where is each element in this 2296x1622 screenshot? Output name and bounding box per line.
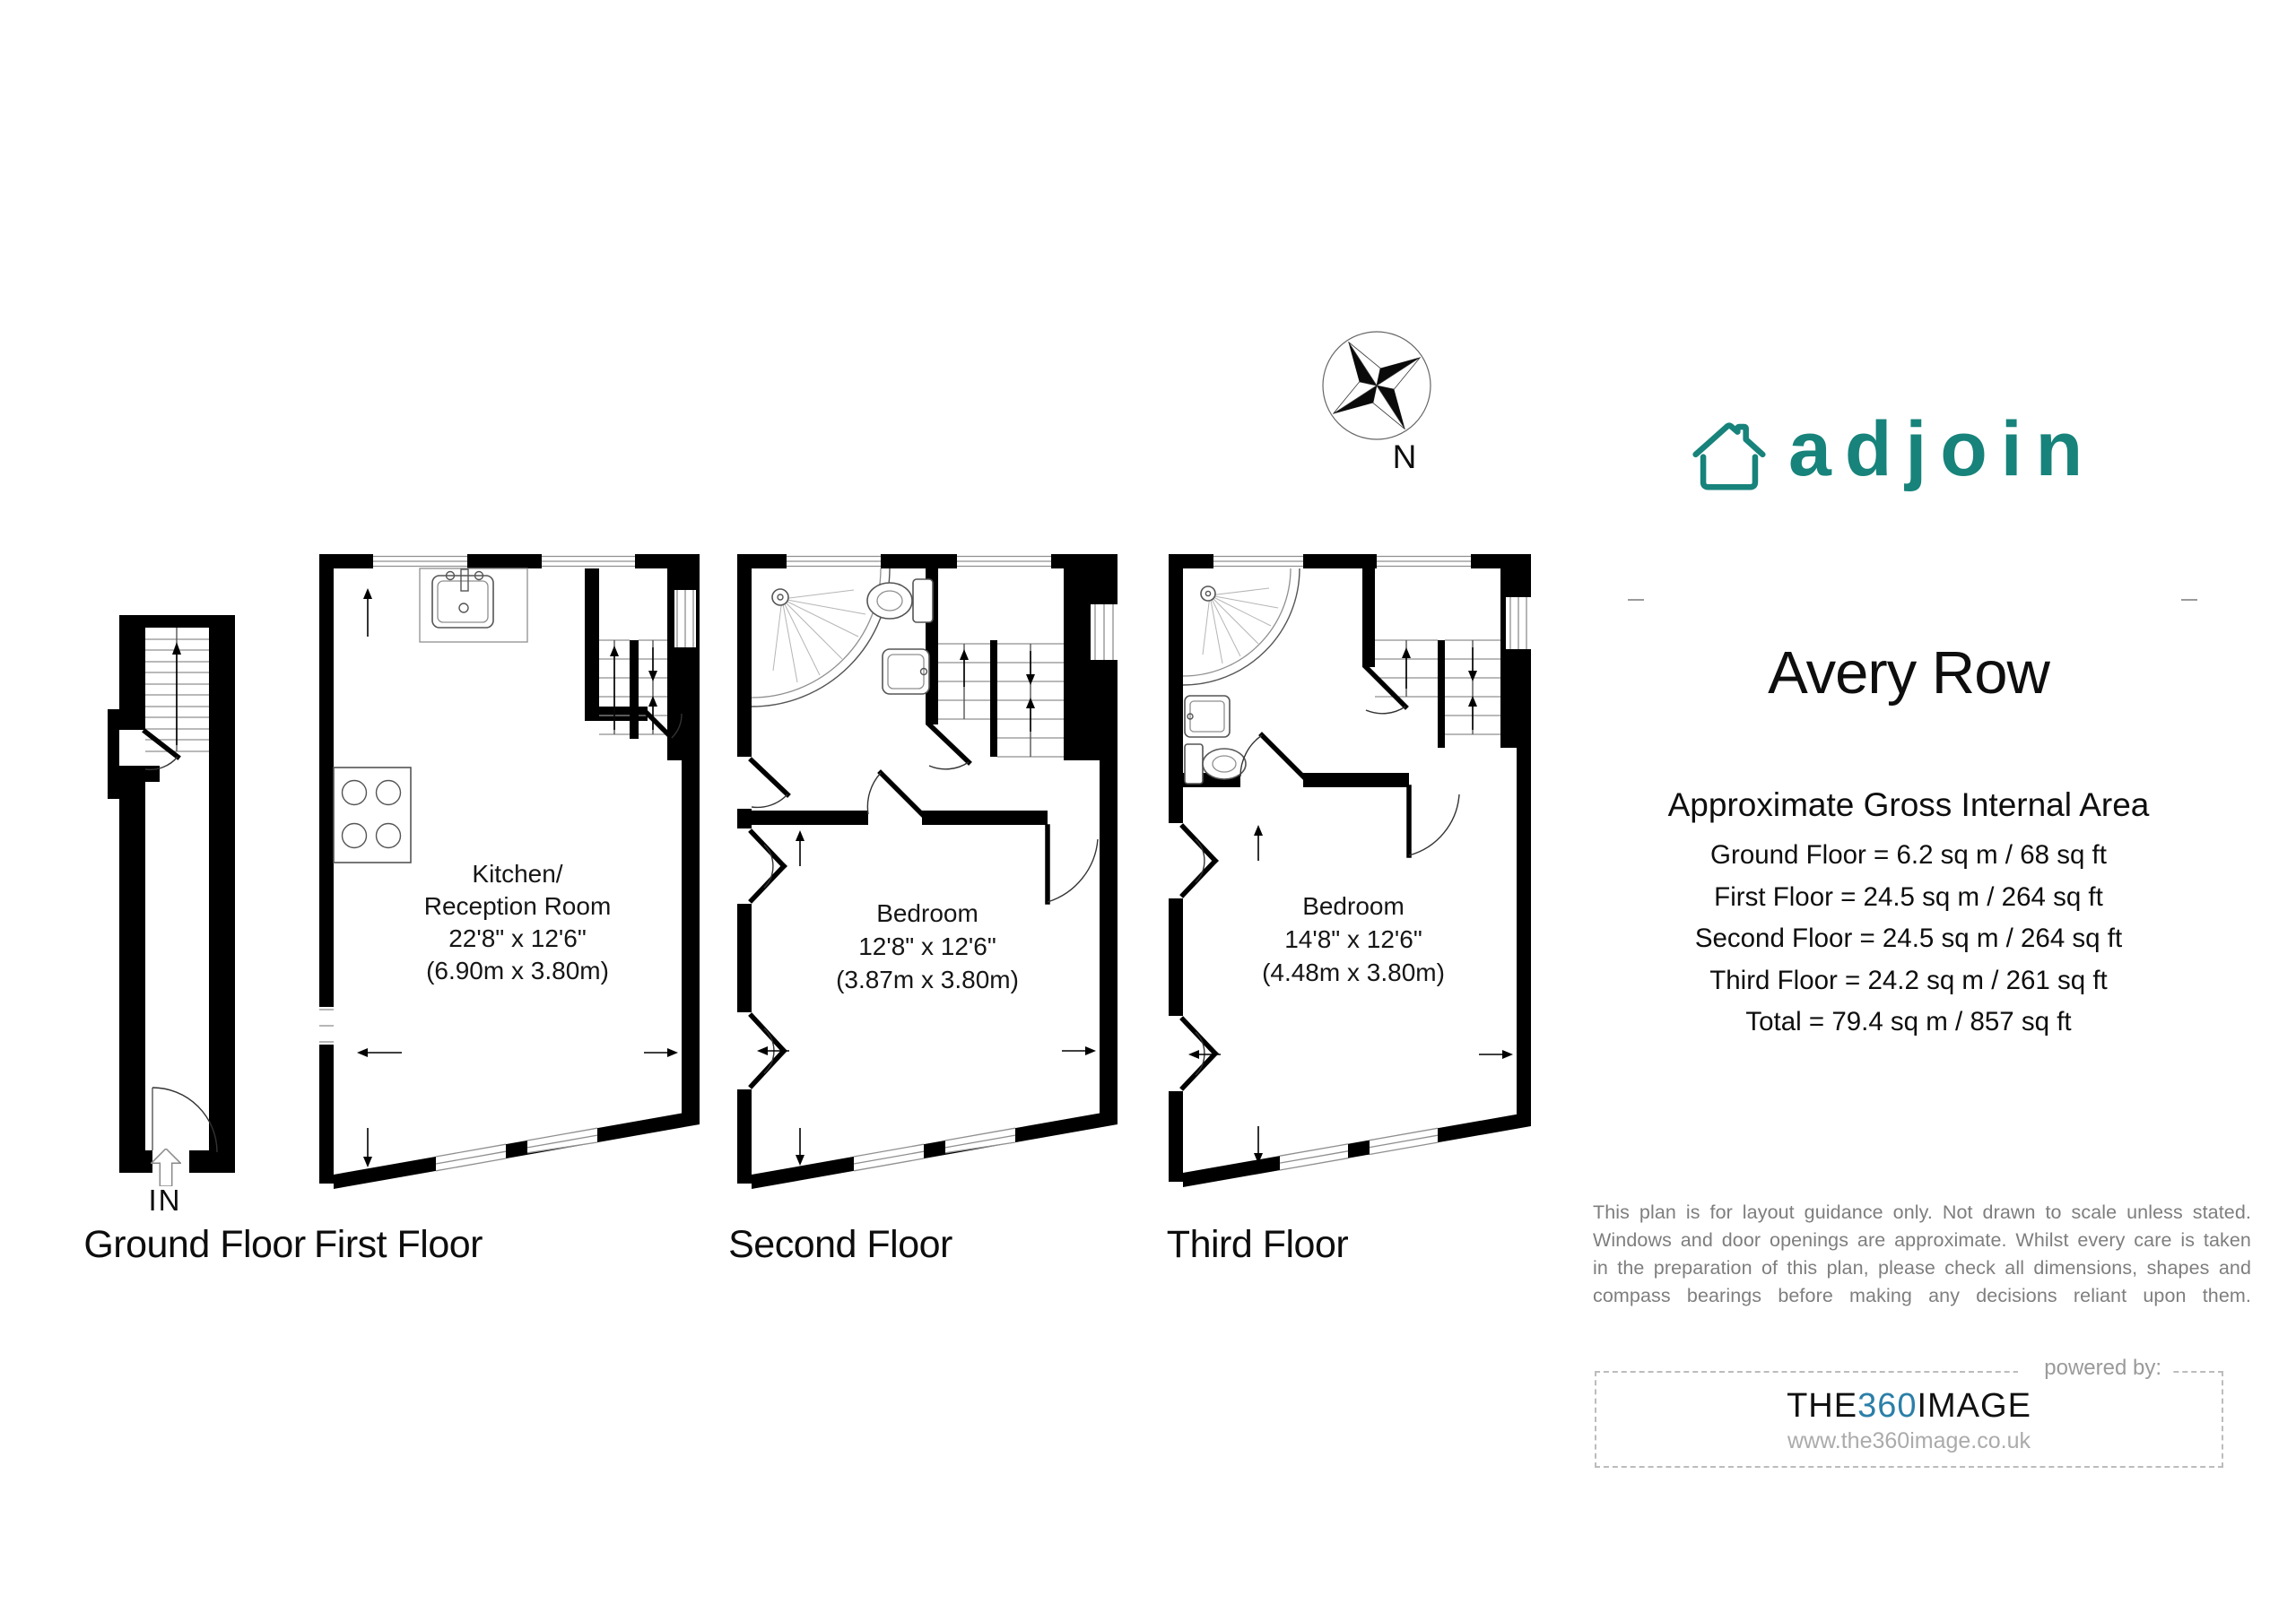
house-logo-icon — [1692, 412, 1767, 493]
logo-360: 360 — [1857, 1387, 1917, 1425]
floor-plan-first: Kitchen/ Reception Room 22'8" x 12'6" (6… — [319, 554, 716, 1210]
caption-third-floor: Third Floor — [1167, 1223, 1348, 1267]
disclaimer-line: in the preparation of this plan, please … — [1593, 1254, 2251, 1282]
compass-rose-icon: N — [1311, 328, 1446, 476]
disclaimer-line: Windows and door openings are approximat… — [1593, 1227, 2251, 1254]
disclaimer-text: This plan is for layout guidance only. N… — [1593, 1199, 2251, 1310]
room-dimensions-metric: (6.90m x 3.80m) — [426, 957, 609, 984]
area-ground: Ground Floor = 6.2 sq m / 68 sq ft — [1577, 835, 2240, 877]
entry-in-label: IN — [149, 1184, 182, 1218]
logo-the: THE — [1787, 1387, 1857, 1425]
tick-mark — [2181, 599, 2197, 601]
disclaimer-line: compass bearings before making any decis… — [1593, 1282, 2251, 1310]
gia-subtitle: Approximate Gross Internal Area — [1577, 786, 2240, 824]
room-name: Bedroom — [876, 899, 978, 927]
logo-image: IMAGE — [1917, 1387, 2031, 1425]
floor-plan-second: Bedroom 12'8" x 12'6" (3.87m x 3.80m) — [737, 554, 1132, 1210]
area-second: Second Floor = 24.5 sq m / 264 sq ft — [1577, 918, 2240, 960]
compass-north-label: N — [1393, 438, 1417, 475]
area-list: Ground Floor = 6.2 sq m / 68 sq ft First… — [1577, 835, 2240, 1044]
window — [319, 1007, 334, 1045]
sink-icon — [1185, 696, 1230, 737]
room-dimensions: 12'8" x 12'6" — [858, 932, 996, 960]
room-dimensions-metric: (3.87m x 3.80m) — [836, 966, 1019, 993]
details-panel: Avery Row Approximate Gross Internal Are… — [1577, 638, 2240, 1044]
brand-wordmark: adjoin — [1788, 405, 2096, 494]
caption-second-floor: Second Floor — [728, 1223, 952, 1267]
sink-icon — [883, 649, 929, 694]
website-url: www.the360image.co.uk — [1596, 1428, 2222, 1454]
caption-ground-floor: Ground Floor — [83, 1223, 305, 1267]
room-name: Reception Room — [424, 892, 612, 920]
caption-first-floor: First Floor — [314, 1223, 483, 1267]
area-third: Third Floor = 24.2 sq m / 261 sq ft — [1577, 960, 2240, 1002]
room-dimensions-metric: (4.48m x 3.80m) — [1262, 958, 1445, 986]
powered-by-label: powered by: — [2018, 1356, 2170, 1381]
area-first: First Floor = 24.5 sq m / 264 sq ft — [1577, 877, 2240, 919]
hob-icon — [334, 768, 411, 863]
floor-plan-third: Bedroom 14'8" x 12'6" (4.48m x 3.80m) — [1169, 554, 1545, 1210]
window — [674, 590, 696, 647]
entry-arrow-icon — [151, 1149, 181, 1186]
toilet-icon — [867, 579, 933, 622]
room-name: Bedroom — [1302, 892, 1405, 920]
room-dimensions: 22'8" x 12'6" — [448, 924, 587, 952]
room-dimensions: 14'8" x 12'6" — [1284, 925, 1422, 953]
area-total: Total = 79.4 sq m / 857 sq ft — [1577, 1002, 2240, 1044]
floorplan-page: N adjoin — [0, 0, 2296, 1622]
the360image-logo: THE360IMAGE — [1596, 1387, 2222, 1426]
powered-by-box: THE360IMAGE www.the360image.co.uk — [1595, 1371, 2223, 1468]
floor-plan-ground — [97, 615, 236, 1175]
room-name: Kitchen/ — [472, 860, 562, 888]
property-title: Avery Row — [1577, 638, 2240, 707]
disclaimer-line: This plan is for layout guidance only. N… — [1593, 1199, 2251, 1227]
tick-mark — [1628, 599, 1644, 601]
